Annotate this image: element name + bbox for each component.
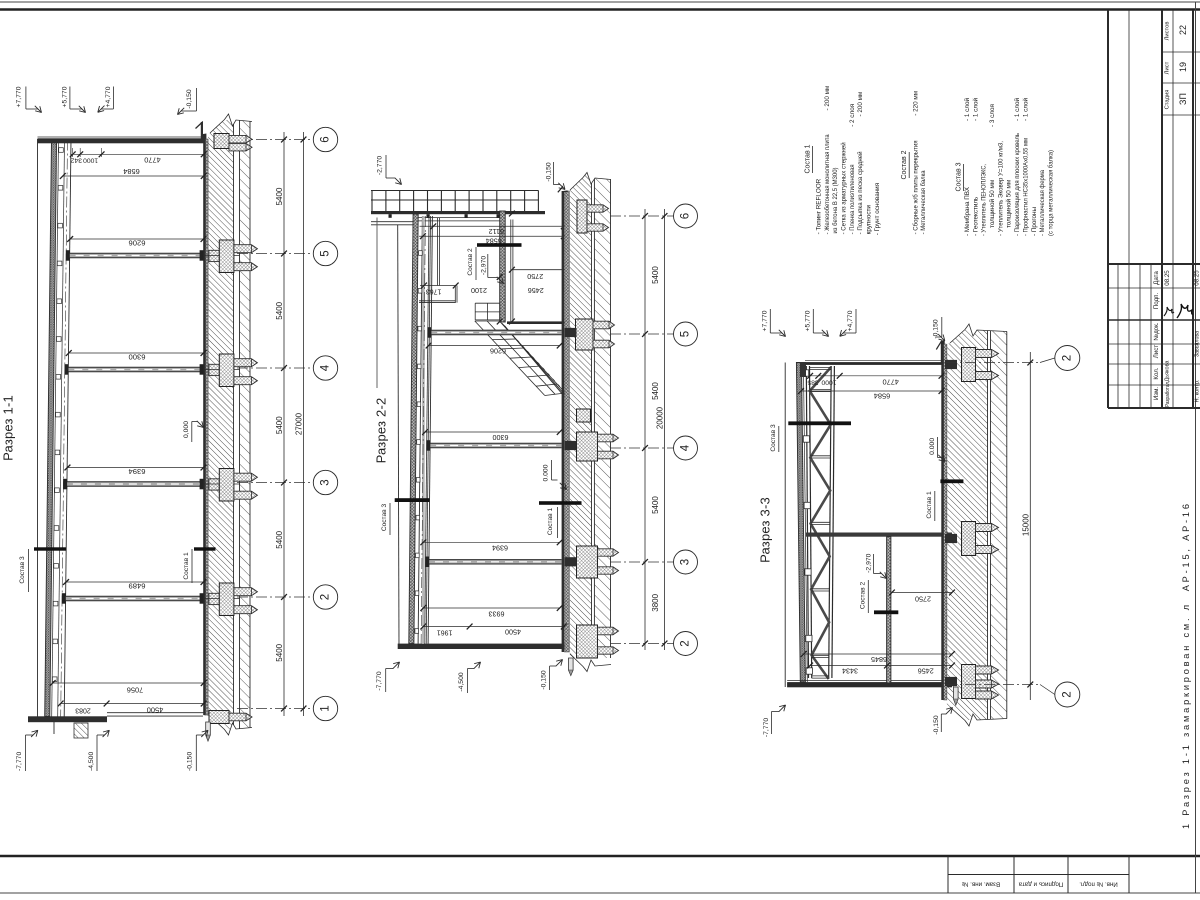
svg-text:+5,770: +5,770 [805,310,812,331]
svg-text:7056: 7056 [127,685,143,694]
svg-text:27000: 27000 [295,412,304,435]
svg-text:6300: 6300 [129,353,146,362]
svg-text:- 1 слой: - 1 слой [1021,98,1029,121]
svg-text:Состав 1: Состав 1 [926,491,933,519]
svg-text:Изм.: Изм. [1153,387,1160,401]
svg-text:- 1 слой: - 1 слой [1013,98,1021,121]
svg-text:-7,770: -7,770 [16,752,23,771]
svg-text:- 1 слой: - 1 слой [963,98,971,121]
svg-text:0.000: 0.000 [543,464,550,481]
svg-text:Состав 3: Состав 3 [770,424,777,452]
svg-text:-0,150: -0,150 [546,162,553,181]
svg-text:+4,770: +4,770 [847,310,854,331]
svg-text:2: 2 [1061,691,1073,697]
svg-text:2: 2 [680,640,692,646]
svg-text:2: 2 [320,594,332,600]
svg-text:1763: 1763 [426,288,442,295]
svg-text:-2,970: -2,970 [865,553,872,572]
svg-text:3: 3 [680,559,692,565]
svg-text:5: 5 [680,331,692,337]
svg-text:- Топинг REFLOOR: - Топинг REFLOOR [816,178,823,234]
svg-text:3800: 3800 [651,593,660,611]
svg-text:Н. контр.: Н. контр. [1195,379,1200,403]
svg-text:- Грунт основания: - Грунт основания [874,183,881,235]
svg-text:- Утеплитель ПЕНОПЛЭКС,: - Утеплитель ПЕНОПЛЭКС, [981,164,988,236]
svg-text:Стадия: Стадия [1165,90,1171,110]
svg-text:2750: 2750 [915,595,931,604]
svg-text:4: 4 [320,364,332,371]
svg-text:Разрез 2-2: Разрез 2-2 [374,398,389,464]
svg-text:- 2 слоя: - 2 слоя [849,104,856,127]
svg-text:6: 6 [320,136,332,142]
svg-text:- Пароизоляция для плоских кро: - Пароизоляция для плоских кровель [1014,132,1021,236]
svg-text:5400: 5400 [275,530,284,548]
svg-text:Разрез 1-1: Разрез 1-1 [1,395,16,461]
svg-text:Взам. инв. №: Взам. инв. № [961,881,1000,888]
svg-text:4: 4 [680,444,692,451]
svg-text:4500: 4500 [505,628,521,637]
svg-text:толщиной 50 мм: толщиной 50 мм [1005,180,1013,228]
svg-text:0.000: 0.000 [929,438,936,455]
svg-text:5400: 5400 [275,416,284,434]
svg-text:342: 342 [70,157,82,164]
svg-text:-0,150: -0,150 [933,319,940,338]
svg-text:19: 19 [1178,62,1188,72]
svg-text:1000: 1000 [83,157,98,164]
svg-text:6584: 6584 [874,391,890,400]
svg-text:4500: 4500 [147,705,163,714]
svg-text:5400: 5400 [651,382,660,400]
svg-text:крупности: крупности [866,205,873,235]
svg-text:-7,770: -7,770 [763,718,770,737]
svg-text:(с торца металлическая балка): (с торца металлическая балка) [1047,150,1055,236]
svg-text:22: 22 [1178,25,1188,35]
svg-text:- Утеплитель Эковер У=100 кг/м: - Утеплитель Эковер У=100 кг/м3, [997,141,1004,236]
svg-text:6933: 6933 [489,609,505,618]
svg-text:2: 2 [1061,355,1073,361]
svg-text:Состав 1: Состав 1 [183,552,190,580]
svg-text:- Железобетонная монолитная пл: - Железобетонная монолитная плита [823,134,831,234]
svg-text:6845: 6845 [871,655,887,664]
svg-text:Состав 2: Состав 2 [901,150,908,179]
svg-text:-4,500: -4,500 [88,752,95,771]
svg-text:5400: 5400 [651,496,660,514]
svg-text:6394: 6394 [492,543,508,552]
svg-text:6584: 6584 [123,167,139,176]
svg-text:Разработал: Разработал [1165,382,1171,407]
svg-text:Дата: Дата [1153,271,1160,285]
svg-text:Лист: Лист [1153,345,1160,359]
svg-text:5400: 5400 [651,266,660,284]
svg-text:- Пленка полиэтиленовая: - Пленка полиэтиленовая [849,164,856,234]
svg-text:15000: 15000 [1021,513,1030,536]
svg-text:- Сборные ж/б плиты перекрытия: - Сборные ж/б плиты перекрытия [911,140,919,234]
svg-text:6: 6 [680,213,692,219]
svg-text:-4,500: -4,500 [458,672,465,691]
svg-text:5400: 5400 [275,301,284,319]
svg-text:Инв. № подл.: Инв. № подл. [1079,881,1118,888]
svg-text:Подп.: Подп. [1153,293,1160,310]
svg-text:- Прогоны: - Прогоны [1031,206,1038,236]
svg-text:Состав 3: Состав 3 [381,503,388,531]
svg-text:08.25: 08.25 [1164,270,1171,286]
svg-text:ЗП: ЗП [1178,93,1188,105]
svg-text:5400: 5400 [275,643,284,661]
svg-text:№док.: №док. [1153,322,1160,340]
svg-text:-0,150: -0,150 [933,715,940,734]
svg-text:Состав 2: Состав 2 [860,581,867,609]
svg-text:- 200 мм: - 200 мм [824,86,831,111]
svg-text:- 200 мм: - 200 мм [857,92,864,117]
svg-text:5: 5 [320,250,332,256]
svg-text:- Геотекстиль: - Геотекстиль [972,196,979,236]
svg-text:2083: 2083 [75,706,91,713]
svg-text:Дьякова: Дьякова [1165,360,1171,382]
svg-text:-0,150: -0,150 [187,752,194,771]
svg-text:3434: 3434 [842,666,858,675]
svg-text:+4,770: +4,770 [105,86,112,107]
svg-text:из бетона В 22,5 (М300): из бетона В 22,5 (М300) [831,168,839,234]
svg-text:- 3 слоя: - 3 слоя [989,104,996,127]
svg-text:Состав 1: Состав 1 [547,507,554,535]
svg-text:6112: 6112 [489,227,504,236]
svg-text:Состав 3: Состав 3 [19,556,26,584]
svg-text:- Металлическая ферма: - Металлическая ферма [1039,170,1046,236]
svg-text:- 220 мм: - 220 мм [912,91,919,116]
svg-text:Состав 2: Состав 2 [467,248,474,276]
svg-text:- Сетка из арматурных стержней: - Сетка из арматурных стержней [840,142,848,234]
svg-text:6300: 6300 [493,433,509,442]
svg-text:6206: 6206 [129,239,146,248]
svg-text:3: 3 [320,479,332,485]
svg-text:4770: 4770 [144,156,160,165]
svg-text:толщиной 50 мм: толщиной 50 мм [988,180,996,228]
svg-text:Листов: Листов [1165,22,1171,41]
svg-text:- Мембрана ПВХ: - Мембрана ПВХ [963,186,971,236]
svg-text:-7,770: -7,770 [376,671,383,690]
svg-text:385: 385 [807,378,818,385]
svg-text:Завьялова: Завьялова [1195,330,1200,357]
svg-text:Подпись и дата: Подпись и дата [1018,881,1063,888]
svg-text:+7,770: +7,770 [762,310,769,331]
svg-text:0,000: 0,000 [183,421,190,438]
svg-text:2100: 2100 [471,286,487,295]
svg-text:Состав 3: Состав 3 [955,162,962,191]
svg-text:2456: 2456 [918,666,934,675]
svg-text:6394: 6394 [129,467,146,476]
svg-text:6489: 6489 [129,582,146,591]
svg-text:1000: 1000 [821,378,836,385]
svg-text:Разрез 3-3: Разрез 3-3 [758,497,773,563]
svg-text:-0,150: -0,150 [541,670,548,689]
svg-text:- Подсыпка из песка средней: - Подсыпка из песка средней [856,151,864,234]
svg-text:1961: 1961 [437,629,453,636]
svg-text:2456: 2456 [528,286,544,295]
svg-text:- Профнастил НС35х1000Ах0,55 м: - Профнастил НС35х1000Ах0,55 мм [1022,138,1029,236]
svg-text:6206: 6206 [490,347,506,356]
svg-text:+7,770: +7,770 [16,86,23,107]
svg-text:+5,770: +5,770 [62,86,69,107]
svg-text:-0,150: -0,150 [186,89,193,108]
svg-text:- Металлическая балка: - Металлическая балка [919,170,927,234]
svg-text:Состав 1: Состав 1 [805,144,812,173]
svg-text:4770: 4770 [882,377,898,386]
svg-text:1: 1 [320,705,332,711]
svg-text:08.25: 08.25 [1194,270,1200,286]
svg-text:2750: 2750 [527,272,543,281]
svg-text:5400: 5400 [275,187,284,205]
svg-text:Лист: Лист [1165,61,1171,74]
svg-text:-2,770: -2,770 [377,156,384,175]
svg-text:20000: 20000 [655,406,664,429]
svg-text:Кол.: Кол. [1153,367,1160,380]
svg-text:-2,970: -2,970 [480,256,487,275]
svg-text:- 1 слой: - 1 слой [971,98,979,121]
